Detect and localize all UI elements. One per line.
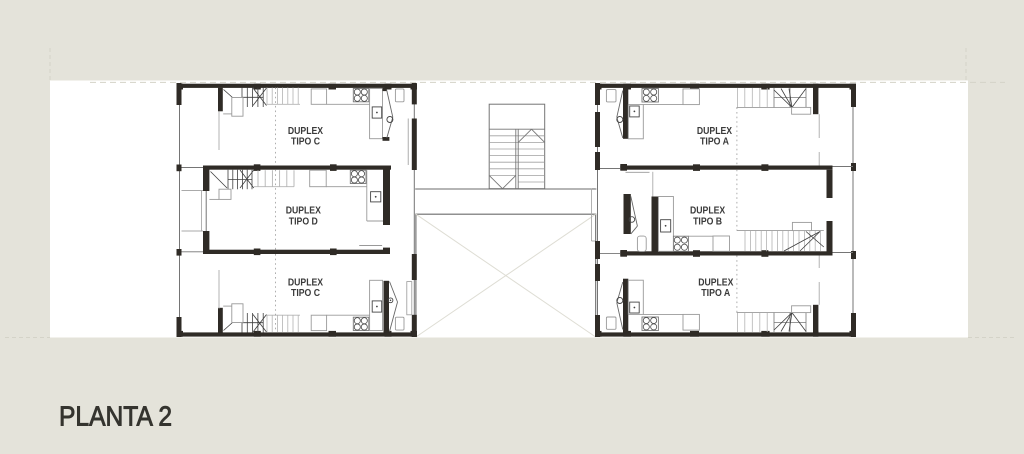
svg-text:DUPLEX: DUPLEX [690, 205, 725, 216]
svg-text:TIPO B: TIPO B [693, 216, 722, 227]
svg-text:TIPO C: TIPO C [291, 288, 320, 299]
svg-text:TIPO D: TIPO D [289, 216, 318, 227]
svg-text:TIPO A: TIPO A [701, 288, 730, 299]
svg-text:DUPLEX: DUPLEX [288, 277, 323, 288]
svg-text:TIPO A: TIPO A [700, 137, 729, 148]
svg-text:DUPLEX: DUPLEX [288, 126, 323, 137]
svg-text:DUPLEX: DUPLEX [286, 205, 321, 216]
svg-text:DUPLEX: DUPLEX [697, 126, 732, 137]
svg-text:TIPO C: TIPO C [291, 137, 320, 148]
svg-text:PLANTA 2: PLANTA 2 [59, 401, 172, 432]
svg-text:DUPLEX: DUPLEX [698, 277, 733, 288]
